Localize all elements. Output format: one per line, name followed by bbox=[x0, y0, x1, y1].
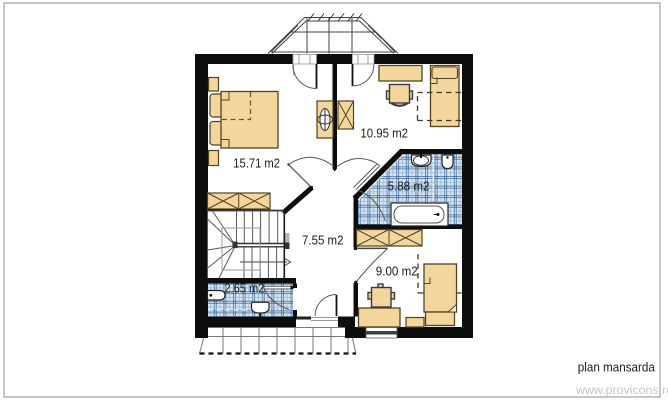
svg-text:5.88 m2: 5.88 m2 bbox=[388, 179, 430, 194]
svg-text:2.65 m2: 2.65 m2 bbox=[224, 280, 264, 295]
svg-text:15.71 m2: 15.71 m2 bbox=[233, 156, 280, 171]
svg-text:10.95 m2: 10.95 m2 bbox=[360, 125, 408, 140]
svg-text:7.55 m2: 7.55 m2 bbox=[302, 233, 344, 248]
svg-text:plan mansarda: plan mansarda bbox=[578, 360, 655, 374]
svg-text:9.00 m2: 9.00 m2 bbox=[376, 263, 418, 278]
svg-text:www.provicons.ro: www.provicons.ro bbox=[575, 383, 668, 397]
